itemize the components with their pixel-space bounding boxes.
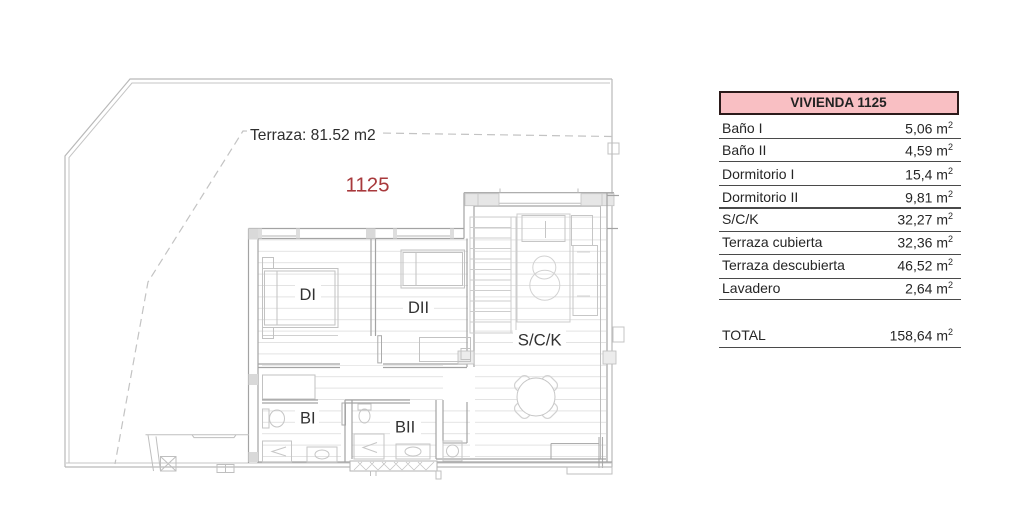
svg-text:BI: BI bbox=[300, 410, 316, 428]
svg-text:Terraza: 81.52 m2: Terraza: 81.52 m2 bbox=[250, 127, 376, 144]
svg-text:DII: DII bbox=[408, 299, 429, 317]
svg-text:1125: 1125 bbox=[346, 174, 390, 197]
svg-text:BII: BII bbox=[395, 418, 415, 436]
svg-text:S/C/K: S/C/K bbox=[518, 330, 562, 349]
svg-text:DI: DI bbox=[300, 286, 317, 304]
